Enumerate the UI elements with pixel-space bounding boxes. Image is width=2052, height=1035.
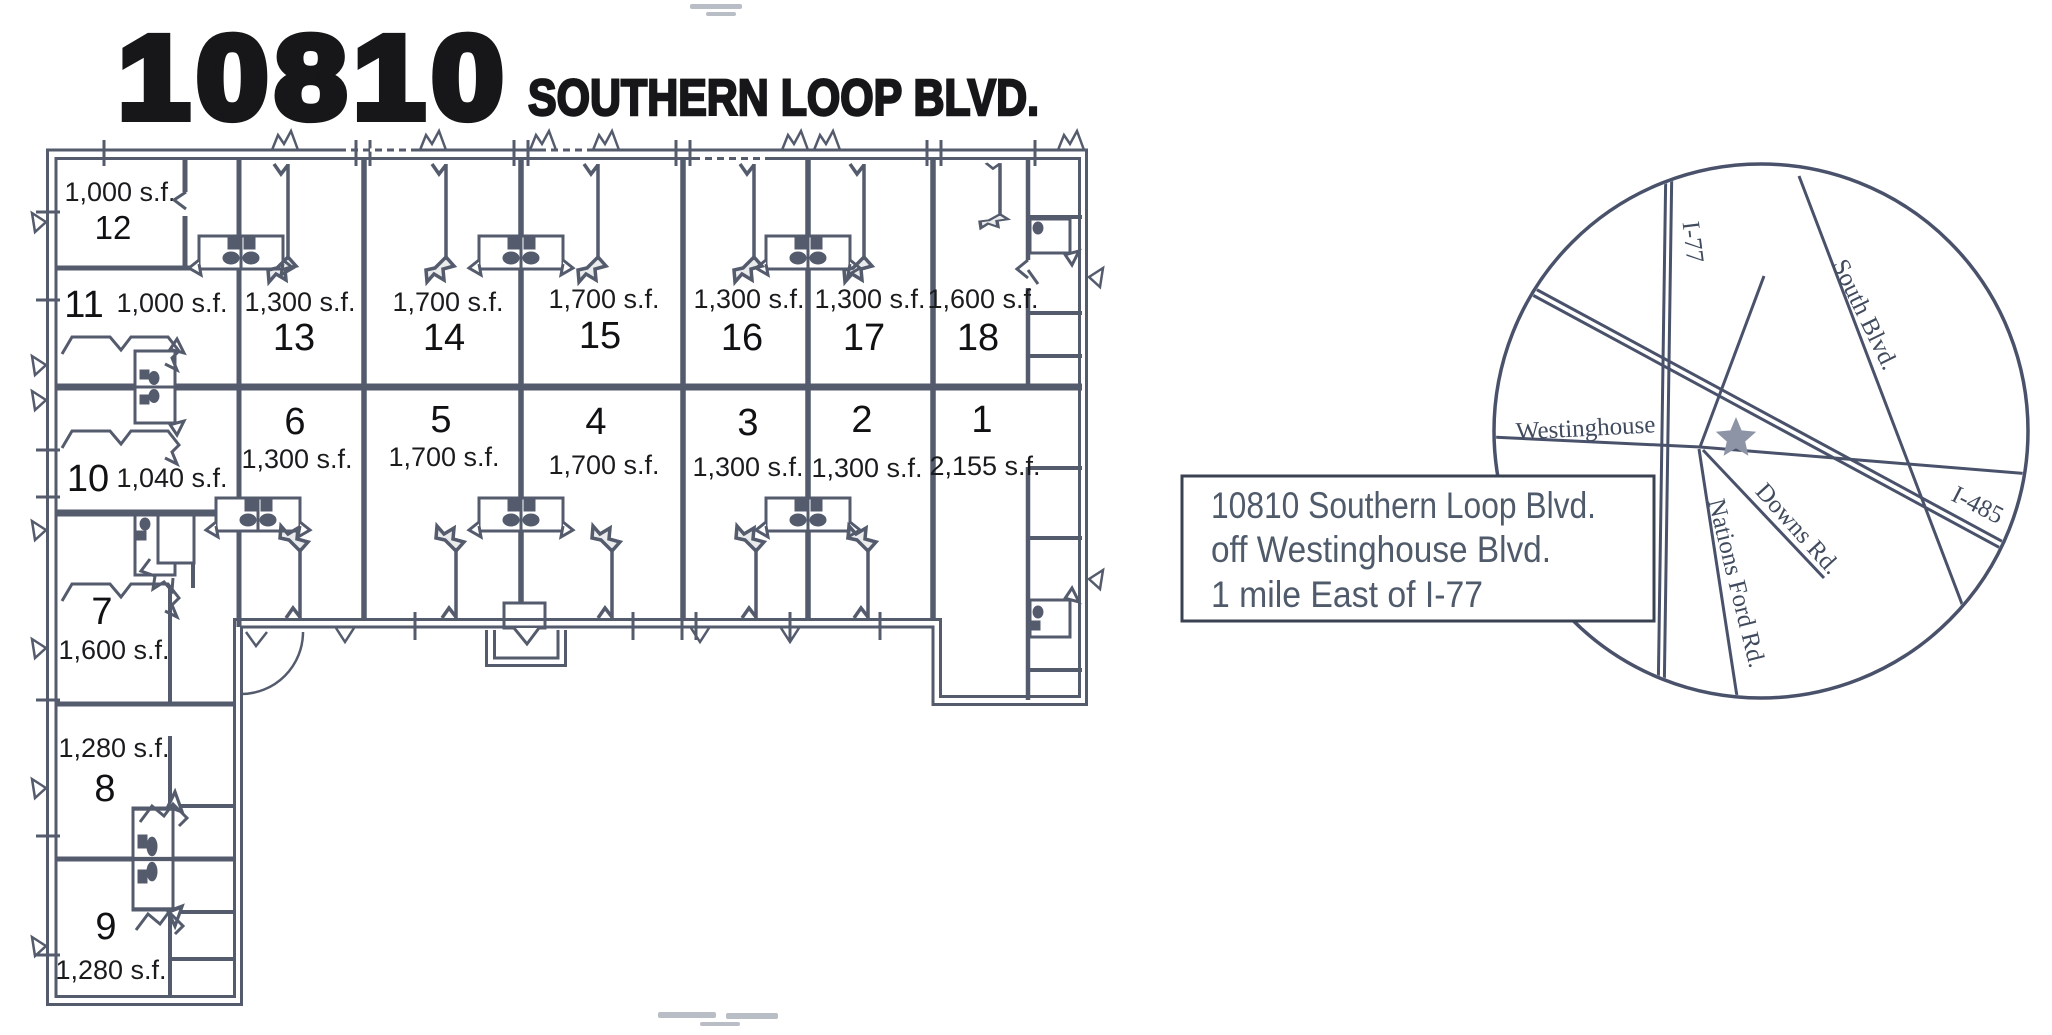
svg-text:17: 17 <box>843 317 885 359</box>
svg-text:14: 14 <box>423 317 465 359</box>
svg-text:18: 18 <box>957 317 999 359</box>
svg-text:1,700 s.f.: 1,700 s.f. <box>388 442 499 472</box>
svg-text:10810 Southern Loop Blvd.: 10810 Southern Loop Blvd. <box>1211 485 1596 526</box>
svg-text:5: 5 <box>430 399 451 441</box>
svg-text:I-77: I-77 <box>1677 220 1709 265</box>
svg-text:1: 1 <box>971 399 992 441</box>
svg-text:1,300 s.f.: 1,300 s.f. <box>811 453 922 483</box>
svg-text:1,300 s.f.: 1,300 s.f. <box>244 287 355 317</box>
svg-text:1,700 s.f.: 1,700 s.f. <box>548 284 659 314</box>
svg-text:1,280 s.f.: 1,280 s.f. <box>58 733 169 763</box>
svg-text:4: 4 <box>585 401 606 443</box>
svg-text:1,700 s.f.: 1,700 s.f. <box>392 287 503 317</box>
svg-text:1,300 s.f.: 1,300 s.f. <box>692 452 803 482</box>
svg-text:2: 2 <box>851 399 872 441</box>
svg-text:1,300 s.f.: 1,300 s.f. <box>814 284 925 314</box>
svg-text:15: 15 <box>579 315 621 357</box>
svg-text:3: 3 <box>737 402 758 444</box>
svg-text:1,000 s.f.: 1,000 s.f. <box>64 177 175 207</box>
svg-text:1,600 s.f.: 1,600 s.f. <box>58 635 169 665</box>
svg-text:10810: 10810 <box>118 12 510 144</box>
svg-text:7: 7 <box>91 591 112 633</box>
svg-text:10: 10 <box>67 458 109 500</box>
svg-text:8: 8 <box>94 768 115 810</box>
svg-text:off Westinghouse Blvd.: off Westinghouse Blvd. <box>1211 529 1551 570</box>
svg-text:1,040 s.f.: 1,040 s.f. <box>116 463 227 493</box>
svg-text:11: 11 <box>64 284 103 326</box>
svg-text:1,000 s.f.: 1,000 s.f. <box>116 288 227 318</box>
svg-text:1,300 s.f.: 1,300 s.f. <box>693 284 804 314</box>
svg-text:13: 13 <box>273 317 315 359</box>
svg-text:SOUTHERN LOOP BLVD.: SOUTHERN LOOP BLVD. <box>528 69 1039 126</box>
svg-text:1 mile East of I-77: 1 mile East of I-77 <box>1211 574 1483 615</box>
svg-text:9: 9 <box>95 906 116 948</box>
svg-text:1,300 s.f.: 1,300 s.f. <box>241 444 352 474</box>
svg-text:1,280 s.f.: 1,280 s.f. <box>55 955 166 985</box>
svg-text:1,600 s.f.: 1,600 s.f. <box>927 284 1038 314</box>
svg-text:6: 6 <box>284 401 305 443</box>
svg-text:1,700 s.f.: 1,700 s.f. <box>548 450 659 480</box>
svg-text:12: 12 <box>95 209 132 246</box>
svg-text:2,155 s.f.: 2,155 s.f. <box>929 451 1040 481</box>
svg-text:16: 16 <box>721 317 763 359</box>
